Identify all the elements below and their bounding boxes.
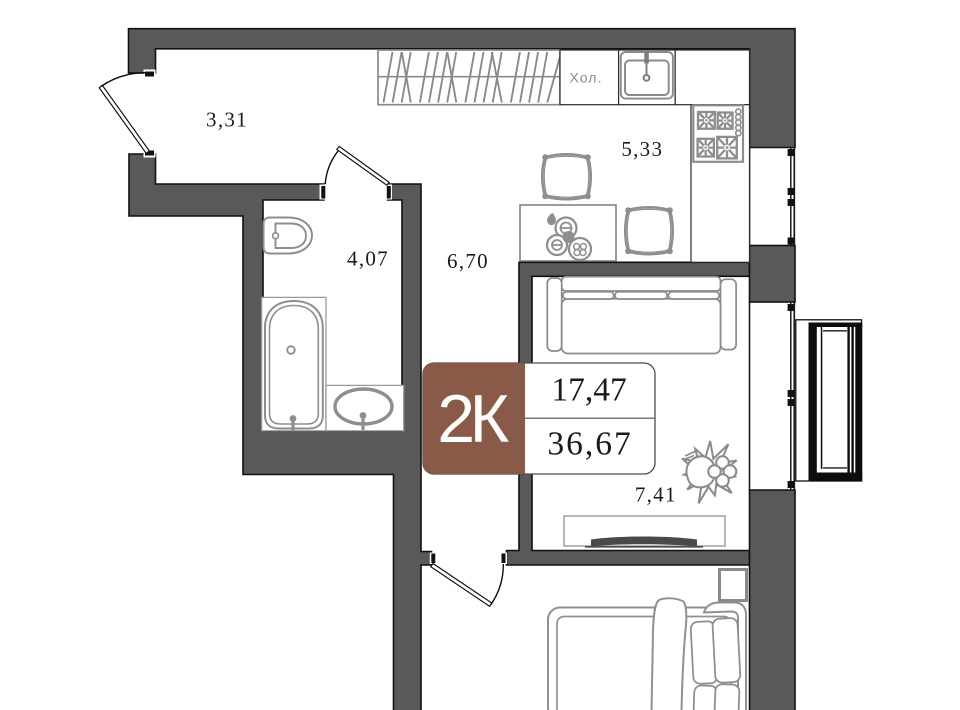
svg-text:3,31: 3,31	[206, 108, 248, 132]
svg-text:36,67: 36,67	[547, 426, 632, 463]
svg-text:5,33: 5,33	[621, 137, 663, 161]
svg-text:7,41: 7,41	[635, 482, 677, 506]
svg-text:4,07: 4,07	[347, 246, 389, 270]
svg-text:17,47: 17,47	[551, 371, 626, 408]
svg-text:6,70: 6,70	[447, 249, 489, 273]
svg-text:2К: 2К	[437, 381, 509, 457]
svg-text:Хол.: Хол.	[569, 70, 602, 86]
